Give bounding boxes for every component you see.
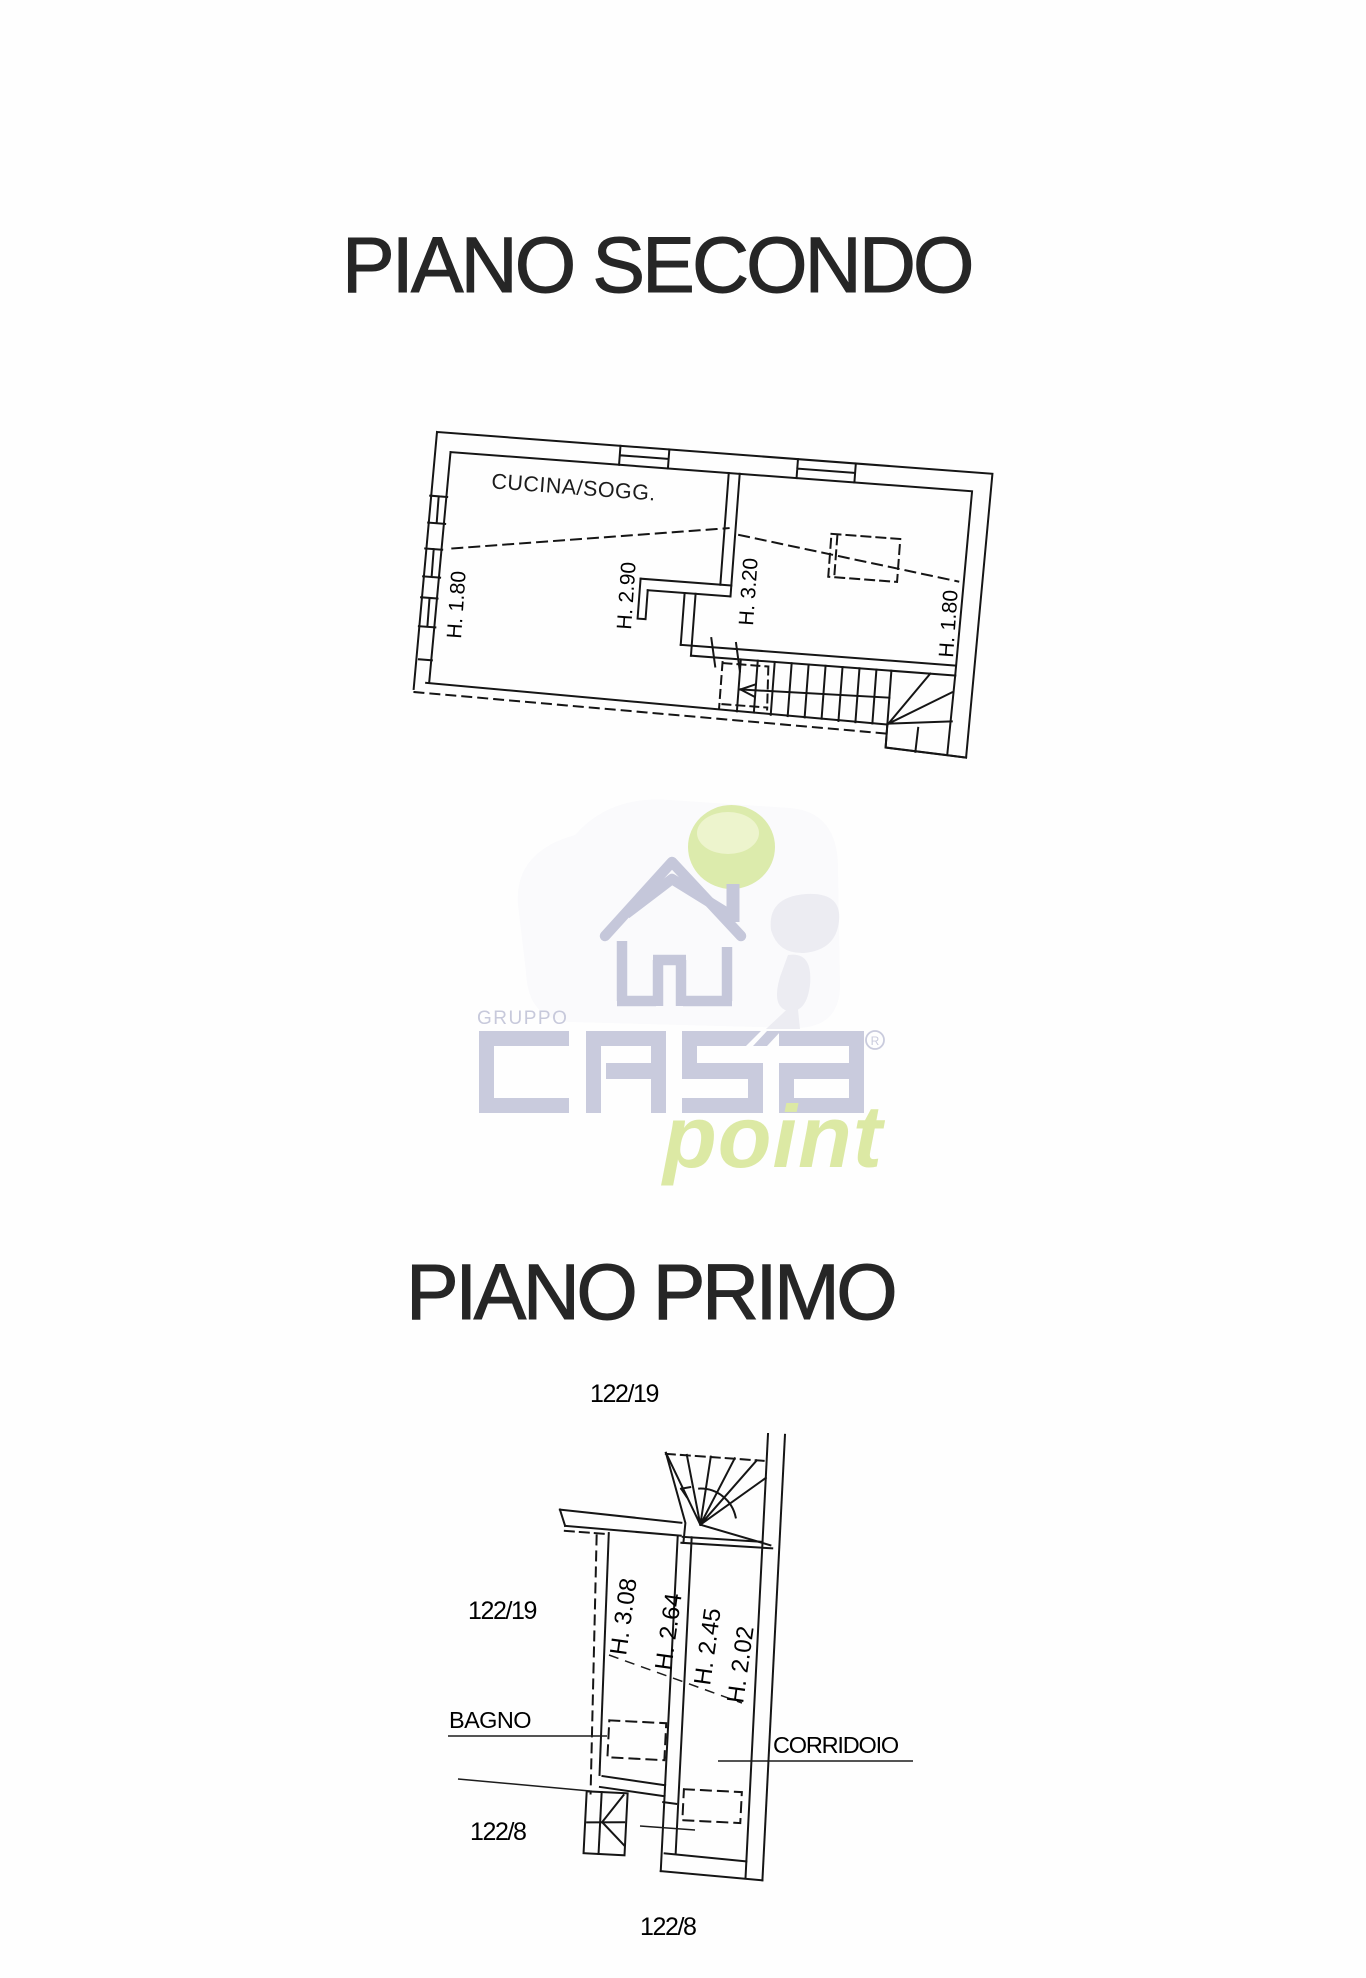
svg-text:point: point	[661, 1087, 886, 1186]
svg-text:R: R	[871, 1034, 880, 1048]
svg-text:H. 1.80: H. 1.80	[935, 589, 963, 658]
svg-text:PIANO PRIMO: PIANO PRIMO	[406, 1247, 894, 1336]
svg-text:H. 3.20: H. 3.20	[735, 557, 763, 626]
svg-text:122/8: 122/8	[640, 1913, 696, 1941]
svg-text:PIANO SECONDO: PIANO SECONDO	[342, 220, 972, 309]
svg-text:GRUPPO: GRUPPO	[477, 1008, 568, 1029]
svg-text:H. 2.90: H. 2.90	[613, 561, 641, 630]
svg-text:122/19: 122/19	[468, 1597, 537, 1625]
svg-text:BAGNO: BAGNO	[449, 1707, 531, 1733]
svg-text:CORRIDOIO: CORRIDOIO	[773, 1732, 899, 1758]
svg-text:H. 1.80: H. 1.80	[443, 570, 471, 639]
svg-text:122/19: 122/19	[590, 1380, 659, 1408]
svg-text:122/8: 122/8	[470, 1818, 526, 1846]
